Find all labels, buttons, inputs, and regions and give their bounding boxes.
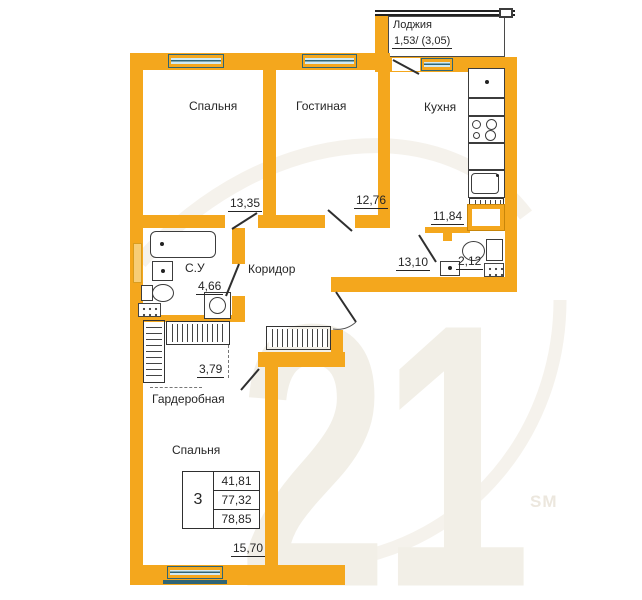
rooms-count: 3 <box>183 472 214 528</box>
bedroom-bottom-area: 15,70 <box>231 541 265 557</box>
bedroom-top-label: Спальня <box>189 99 237 113</box>
area-without-loggia-value: 77,32 <box>214 490 259 509</box>
window-sill-bottom <box>163 580 227 584</box>
total-area-value: 78,85 <box>214 509 259 528</box>
bathroom-cabinet <box>138 303 161 317</box>
balcony-door-opening <box>392 58 420 71</box>
bedroom-top-area: 13,35 <box>228 196 262 212</box>
wc-toilet-tank <box>486 239 503 261</box>
kitchen-area: 11,84 <box>431 209 464 225</box>
bathroom-shaft <box>133 243 142 283</box>
bedroom-bottom-label: Спальня <box>172 443 220 457</box>
wall-bathroom-right-upper <box>232 228 245 264</box>
wc-area: 2,12 <box>456 254 483 270</box>
bathroom-sink-drain <box>161 269 165 273</box>
window-bedroom-top <box>168 54 224 68</box>
stove-burner <box>473 132 480 139</box>
loggia-glazing <box>375 10 515 16</box>
closet-top <box>166 321 230 345</box>
floor-plan: 21 SM Лоджия 1,53/ (3,05) <box>0 0 642 600</box>
washing-machine-drum <box>209 297 226 314</box>
closet-middle <box>266 326 331 350</box>
wardrobe-dashed-boundary-h <box>150 387 202 388</box>
kitchen-counter-a <box>468 98 505 116</box>
stove-burner <box>472 120 481 129</box>
kitchen-sink-drain <box>485 80 489 84</box>
bathroom-area: 4,66 <box>196 279 223 295</box>
window-living <box>302 54 357 68</box>
watermark-21: 21 <box>238 268 524 600</box>
kitchen-counter-b <box>468 143 505 170</box>
living-room-label: Гостиная <box>296 99 346 113</box>
duct-box <box>468 205 504 230</box>
wardrobe-area: 3,79 <box>197 362 224 378</box>
wc-sink-drain <box>448 266 452 270</box>
wall-corridor-top-b <box>258 215 325 228</box>
window-kitchen <box>421 58 453 71</box>
watermark-layer: 21 SM <box>0 0 642 600</box>
wall-loggia-left <box>375 16 388 57</box>
wall-wc-nub <box>443 228 452 241</box>
loggia-area-label: 1,53/ (3,05) <box>392 35 452 49</box>
bathroom-label: С.У <box>185 261 205 275</box>
wc-cabinet <box>484 263 504 277</box>
wardrobe-label: Гардеробная <box>152 392 225 406</box>
window-bedroom-bottom <box>167 566 223 579</box>
wall-right-outer <box>505 57 517 292</box>
wall-left-outer <box>130 53 143 585</box>
toilet-bowl <box>152 284 174 302</box>
loggia-label: Лоджия <box>393 19 432 31</box>
wall-corridor-top-c <box>355 215 390 228</box>
loggia-end-post <box>499 8 513 18</box>
fridge-hinge <box>496 174 499 177</box>
wall-bedroom-living-divider <box>263 70 276 218</box>
watermark-sm: SM <box>530 492 558 512</box>
fridge-inner <box>471 173 499 194</box>
wall-bedroom-bottom-right <box>265 352 278 565</box>
stove-burner <box>486 119 497 130</box>
kitchen-label: Кухня <box>424 100 456 114</box>
summary-table: 3 41,81 77,32 78,85 <box>182 471 260 529</box>
wall-corridor-top-a <box>143 215 225 228</box>
closet-left <box>143 320 165 383</box>
bathtub-drain <box>160 242 164 246</box>
wall-hall-bottom <box>331 277 517 292</box>
wardrobe-dashed-boundary-v <box>228 345 229 378</box>
living-room-area: 12,76 <box>354 193 388 209</box>
corridor-label: Коридор <box>248 262 295 276</box>
living-area-value: 41,81 <box>214 472 259 490</box>
stove-burner <box>485 130 496 141</box>
corridor-area: 13,10 <box>396 255 430 271</box>
